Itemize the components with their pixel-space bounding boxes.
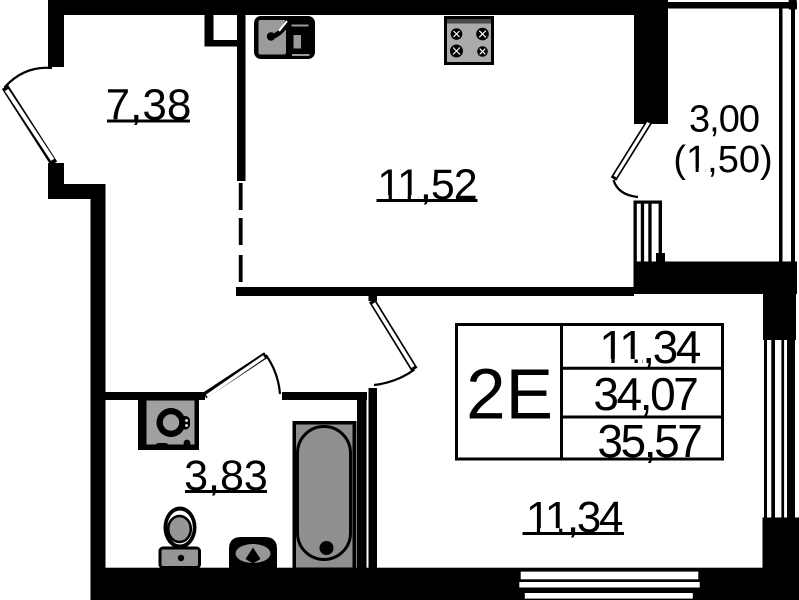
svg-text:(1,50): (1,50) xyxy=(673,139,772,181)
svg-text:11,34: 11,34 xyxy=(599,321,701,373)
svg-text:35,57: 35,57 xyxy=(597,415,701,467)
svg-text:3,00: 3,00 xyxy=(689,99,759,141)
svg-text:34,07: 34,07 xyxy=(593,368,697,420)
svg-text:2E: 2E xyxy=(466,355,553,434)
